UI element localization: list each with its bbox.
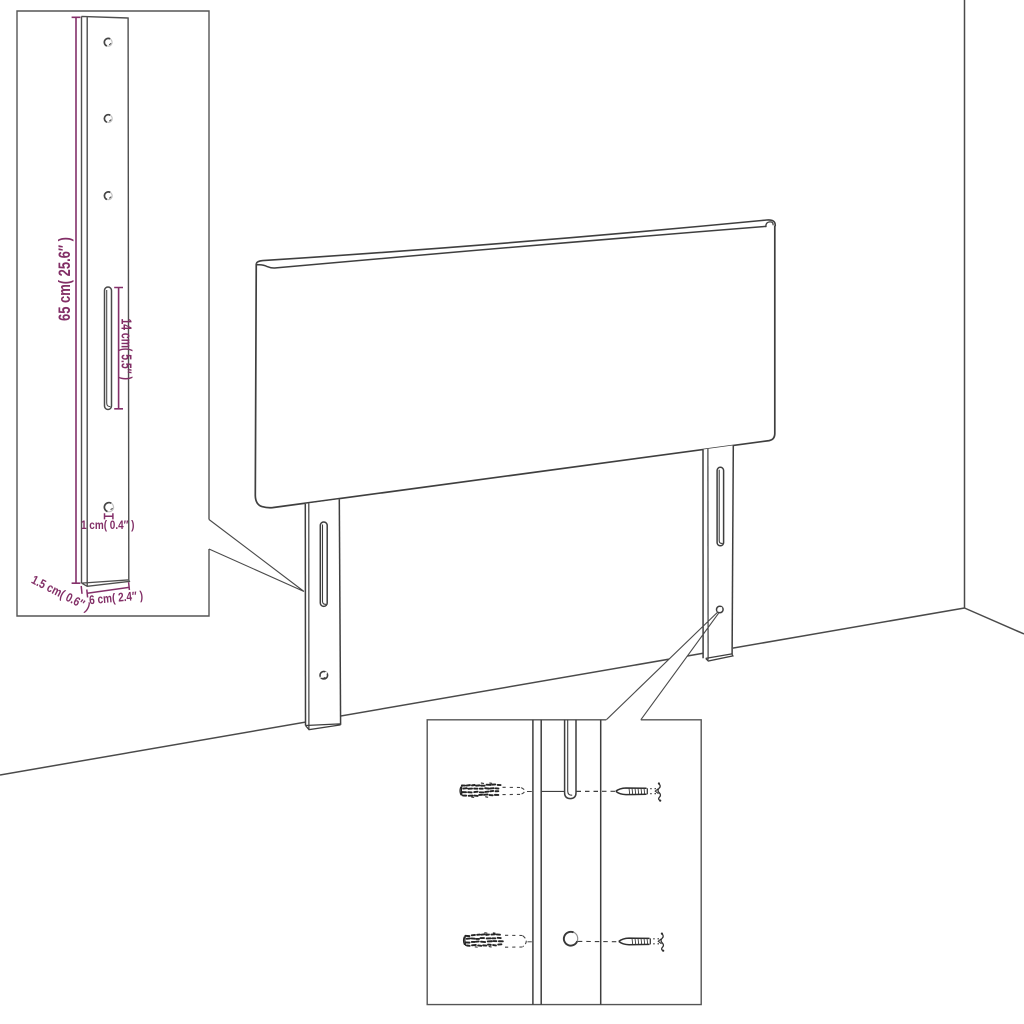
svg-text:1 cm( 0.4″ ): 1 cm( 0.4″ ) [81,518,135,532]
svg-text:65 cm( 25.6″ ): 65 cm( 25.6″ ) [56,237,74,321]
svg-text:14 cm( 5.5″ ): 14 cm( 5.5″ ) [117,319,133,381]
